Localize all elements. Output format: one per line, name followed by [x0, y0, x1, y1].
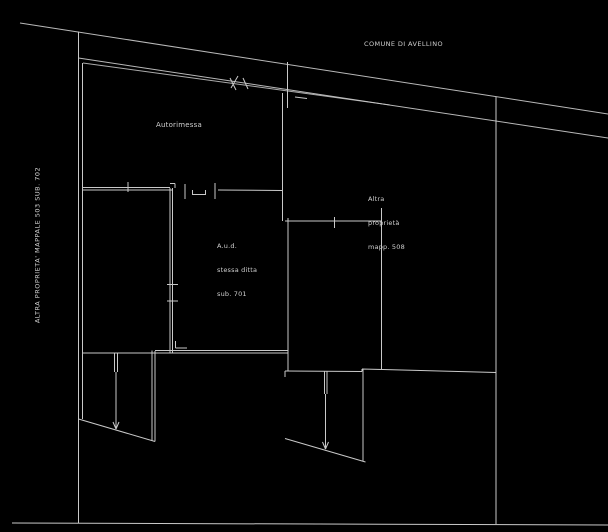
other-property-right-line2: proprietà [368, 219, 405, 227]
right-parcel-line [285, 369, 496, 373]
garage-bottom-wall [83, 188, 282, 191]
other-property-right-line1: Altra [368, 195, 405, 203]
boundary-diagonal-lower [83, 63, 390, 105]
aud-note-line1: A.u.d. [217, 242, 257, 250]
boundary-diagonal-top [20, 23, 608, 114]
aud-note-line2: stessa ditta [217, 266, 257, 274]
other-property-right-note: Altra proprietà mapp. 508 [368, 179, 405, 267]
garage-label: Autorimessa [156, 121, 202, 129]
lower-right-dimension [323, 371, 329, 449]
site-plan: COMUNE DI AVELLINO Autorimessa A.u.d. st… [0, 0, 608, 532]
other-property-right-line3: mapp. 508 [368, 243, 405, 251]
aud-note: A.u.d. stessa ditta sub. 701 [217, 226, 257, 314]
municipality-label: COMUNE DI AVELLINO [364, 40, 443, 48]
middle-parcel-line [82, 351, 288, 354]
site-plan-linework [0, 0, 608, 532]
boundary-bottom-horizontal [12, 523, 608, 525]
survey-hatch-marks [230, 76, 307, 99]
lower-left-dimension [113, 353, 119, 429]
aud-note-line3: sub. 701 [217, 290, 257, 298]
interior-wall [170, 188, 173, 353]
other-property-left-note: ALTRA PROPRIETA' MAPPALE 503 SUB. 702 [33, 158, 43, 333]
